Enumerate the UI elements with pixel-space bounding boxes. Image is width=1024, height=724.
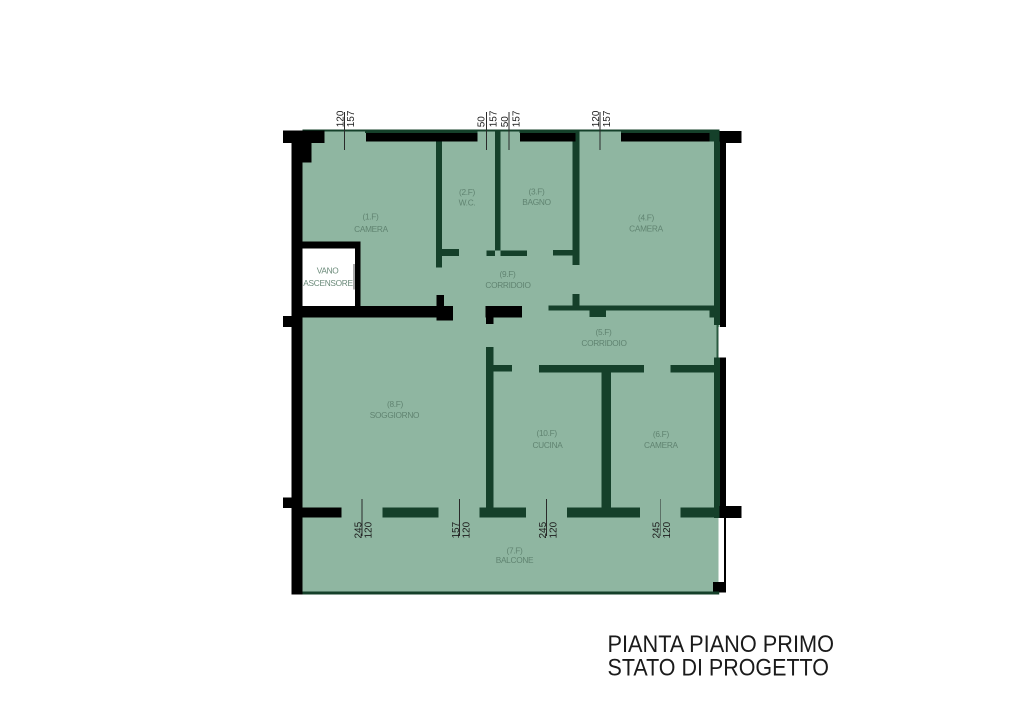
svg-text:CORRIDOIO: CORRIDOIO: [485, 280, 531, 290]
svg-text:157: 157: [346, 110, 357, 127]
svg-text:(7.F): (7.F): [506, 545, 523, 555]
svg-text:50: 50: [477, 116, 488, 128]
svg-text:BAGNO: BAGNO: [522, 197, 551, 207]
svg-text:W.C.: W.C.: [459, 198, 476, 208]
svg-text:VANO: VANO: [317, 266, 340, 276]
svg-text:120: 120: [335, 110, 346, 127]
svg-text:120: 120: [548, 521, 559, 538]
svg-text:(3.F): (3.F): [528, 187, 545, 197]
svg-text:157: 157: [511, 110, 522, 127]
svg-text:CUCINA: CUCINA: [532, 440, 563, 450]
svg-text:SOGGIORNO: SOGGIORNO: [370, 410, 420, 420]
svg-text:CAMERA: CAMERA: [629, 224, 663, 234]
svg-text:CAMERA: CAMERA: [354, 224, 388, 234]
svg-text:120: 120: [461, 521, 472, 538]
svg-text:(2.F): (2.F): [459, 187, 476, 197]
svg-text:CAMERA: CAMERA: [644, 440, 678, 450]
svg-text:(5.F): (5.F): [595, 327, 612, 337]
svg-text:120: 120: [364, 521, 375, 538]
svg-text:120: 120: [591, 110, 602, 127]
svg-text:(1.F): (1.F): [362, 212, 379, 222]
svg-text:157: 157: [488, 110, 499, 127]
svg-text:(8.F): (8.F): [387, 399, 404, 409]
svg-text:(4.F): (4.F): [638, 213, 655, 223]
svg-text:245: 245: [651, 521, 662, 538]
svg-text:157: 157: [602, 110, 613, 127]
svg-text:120: 120: [662, 521, 673, 538]
svg-text:(10.F): (10.F): [537, 428, 558, 438]
svg-text:245: 245: [538, 521, 549, 538]
svg-text:CORRIDOIO: CORRIDOIO: [581, 338, 627, 348]
svg-text:STATO DI PROGETTO: STATO DI PROGETTO: [608, 655, 830, 682]
svg-text:ASCENSORE: ASCENSORE: [303, 278, 353, 288]
svg-text:BALCONE: BALCONE: [496, 555, 534, 565]
svg-text:50: 50: [500, 116, 511, 128]
svg-text:(6.F): (6.F): [653, 429, 670, 439]
svg-text:(9.F): (9.F): [499, 269, 516, 279]
